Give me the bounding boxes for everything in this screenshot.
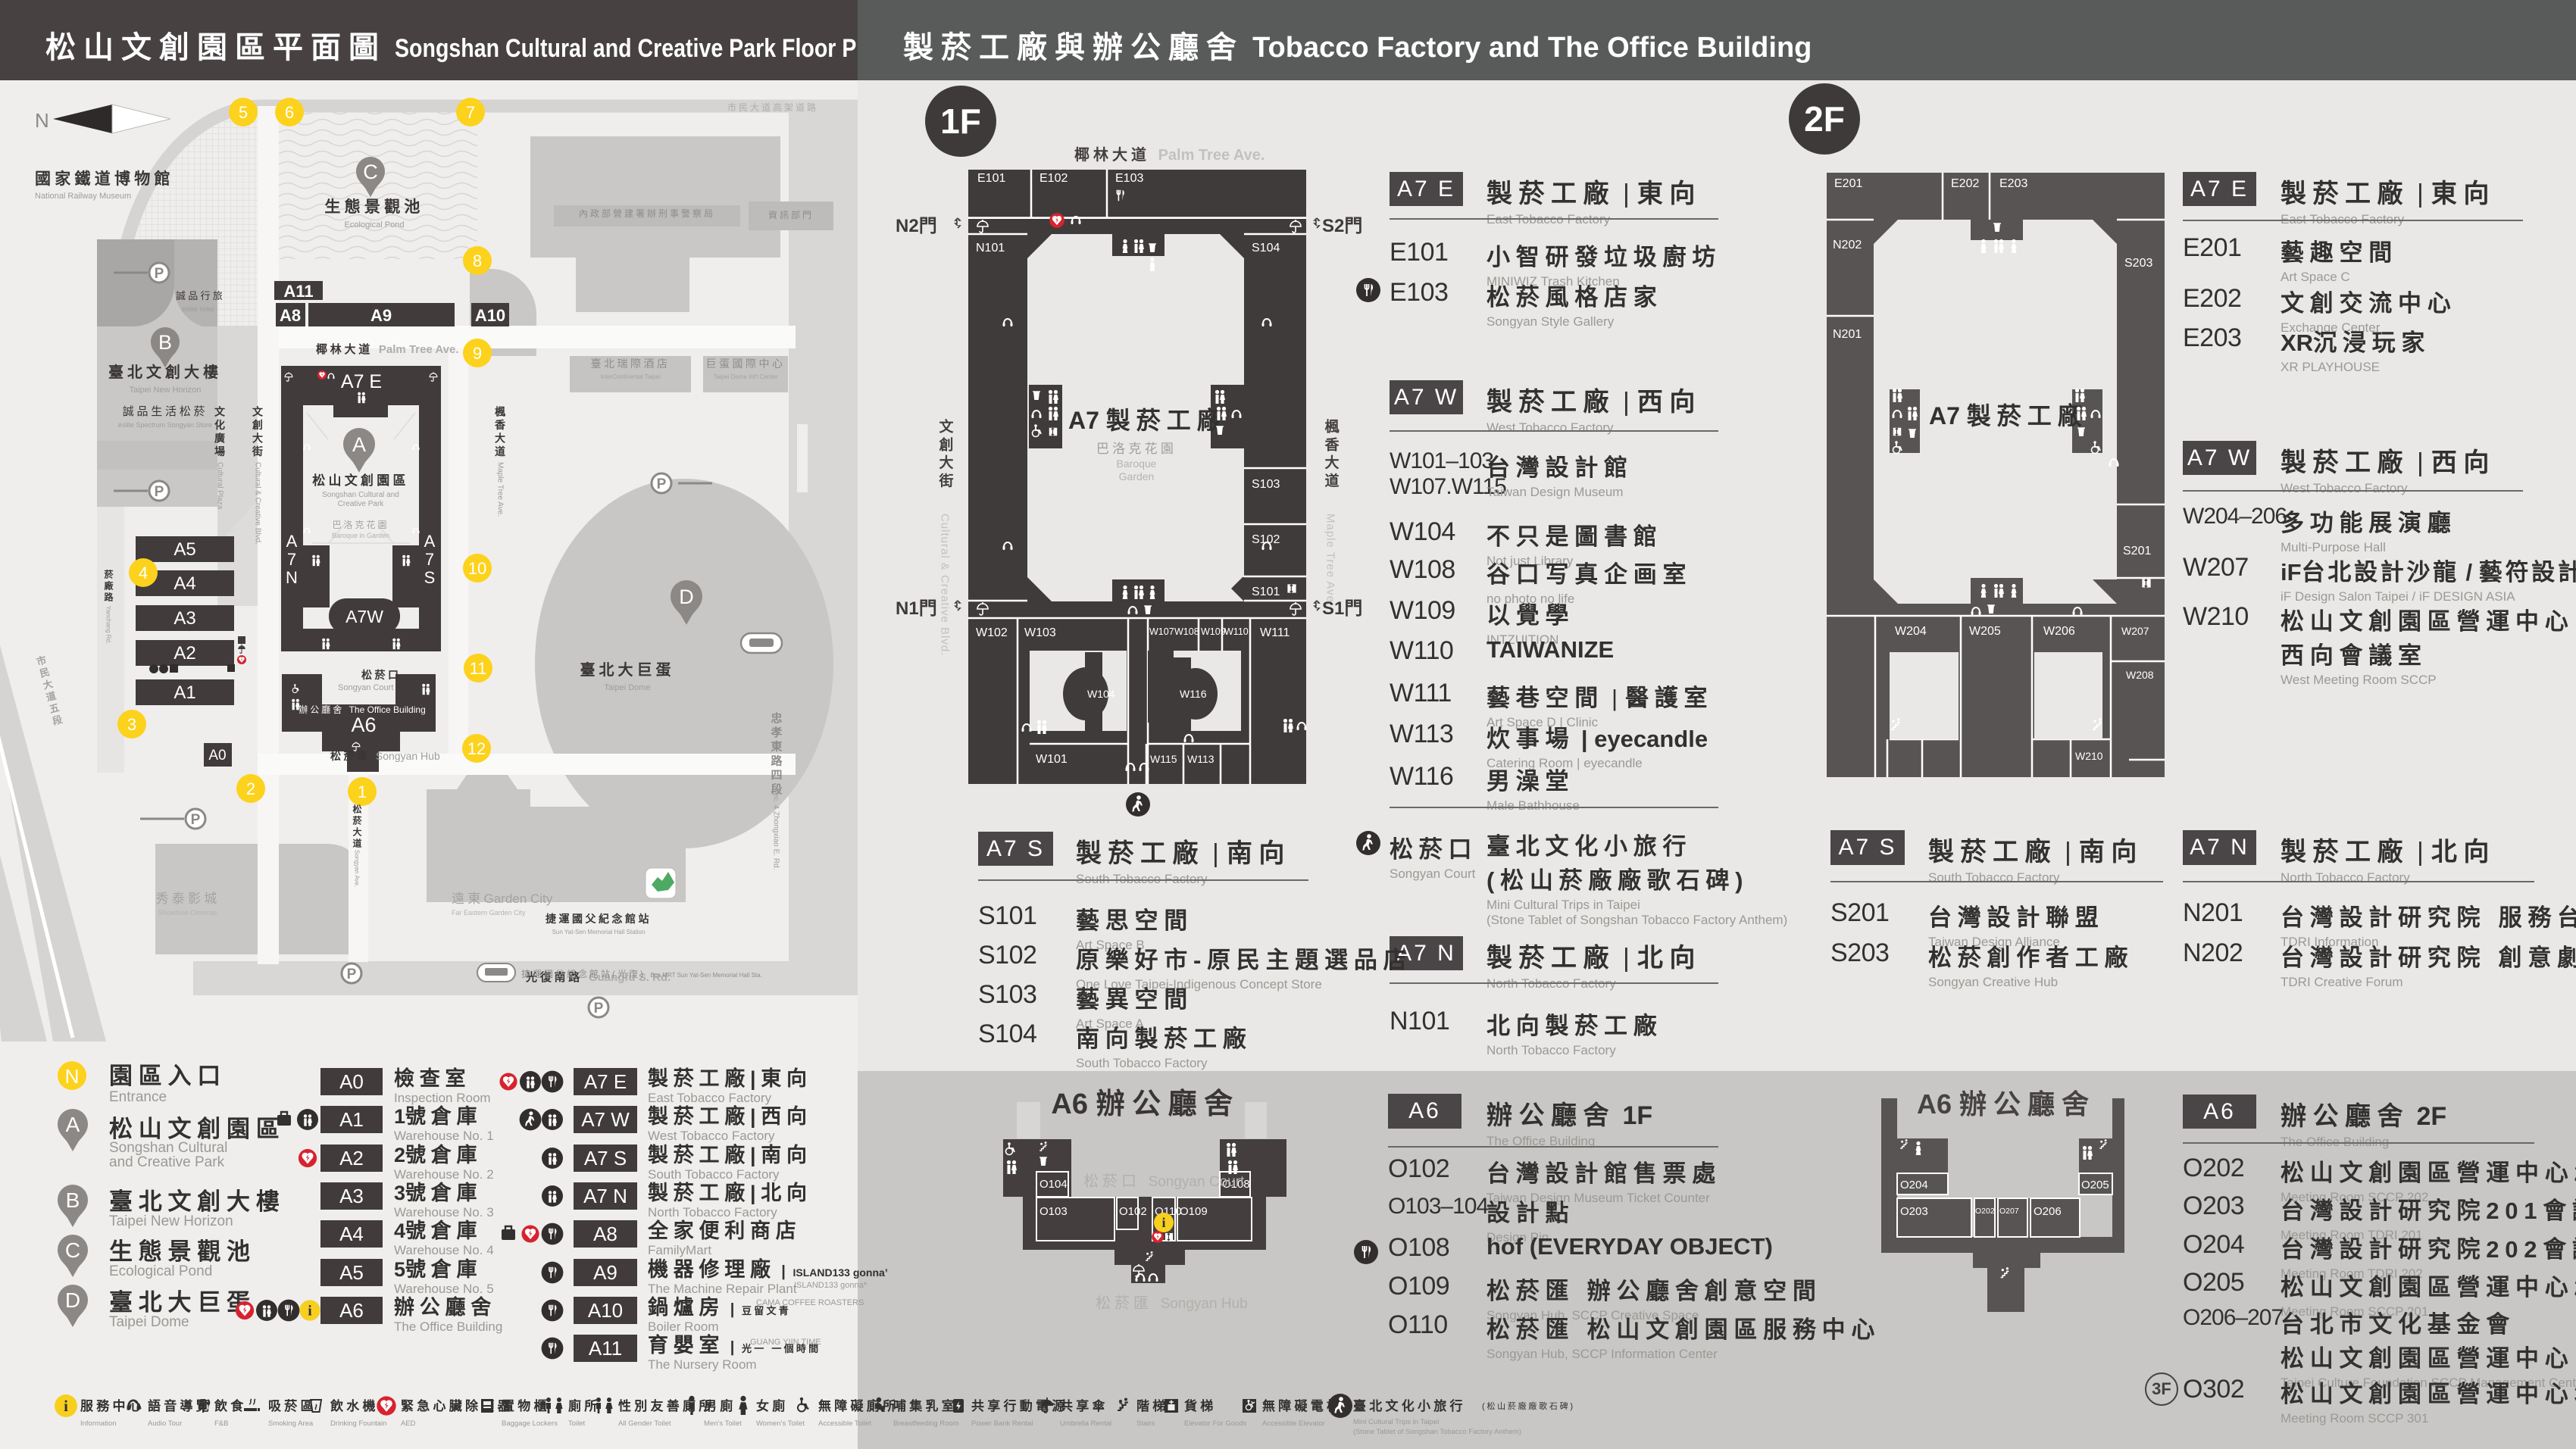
svg-text:AED: AED: [401, 1419, 416, 1428]
svg-text:Elevator For Goods: Elevator For Goods: [1184, 1419, 1247, 1428]
svg-text:製菸工廠|北向: 製菸工廠|北向: [648, 1181, 812, 1204]
svg-text:Toilet: Toilet: [568, 1419, 586, 1428]
svg-text:All Gender Toilet: All Gender Toilet: [618, 1419, 671, 1428]
svg-text:W103: W103: [1024, 626, 1056, 639]
svg-text:Ecological Pond: Ecological Pond: [109, 1263, 212, 1279]
svg-text:Accessible Toilet: Accessible Toilet: [818, 1419, 871, 1428]
svg-text:Inspection Room: Inspection Room: [394, 1091, 491, 1105]
svg-text:The Nursery Room: The Nursery Room: [648, 1357, 757, 1372]
svg-text:W113: W113: [1187, 753, 1215, 765]
svg-text:A6: A6: [339, 1299, 364, 1322]
svg-text:Baroque: Baroque: [1117, 457, 1157, 470]
svg-text:A0: A0: [339, 1070, 364, 1093]
svg-text:飲水機: 飲水機: [330, 1398, 379, 1413]
svg-text:5號倉庫: 5號倉庫: [394, 1257, 482, 1281]
svg-text:2F: 2F: [1804, 99, 1845, 139]
svg-text:共享行動電源: 共享行動電源: [971, 1398, 1068, 1413]
svg-text:生態景觀池: 生態景觀池: [109, 1238, 256, 1265]
svg-text:E102: E102: [1039, 172, 1068, 185]
svg-text:A7 製菸工廠: A7 製菸工廠: [1068, 407, 1227, 434]
svg-text:W116: W116: [1180, 688, 1207, 700]
svg-text:Audio Tour: Audio Tour: [148, 1419, 182, 1428]
svg-text:East Tobacco Factory: East Tobacco Factory: [648, 1091, 772, 1105]
svg-text:S102: S102: [1252, 533, 1280, 546]
svg-text:W111: W111: [1260, 626, 1290, 639]
svg-text:3號倉庫: 3號倉庫: [394, 1181, 482, 1204]
svg-text:男廁: 男廁: [704, 1398, 736, 1413]
svg-text:W115: W115: [1150, 753, 1177, 765]
svg-text:N101: N101: [976, 242, 1005, 255]
svg-text:C: C: [65, 1238, 80, 1262]
svg-text:Warehouse No. 3: Warehouse No. 3: [394, 1205, 494, 1219]
svg-text:W104: W104: [1087, 688, 1115, 700]
svg-text:階梯: 階梯: [1136, 1398, 1169, 1413]
svg-text:Entrance: Entrance: [109, 1089, 167, 1105]
svg-text:臺北大巨蛋: 臺北大巨蛋: [109, 1289, 256, 1316]
svg-text:A4: A4: [339, 1223, 364, 1245]
svg-text:A7 E: A7 E: [584, 1070, 627, 1093]
svg-text:2號倉庫: 2號倉庫: [394, 1143, 482, 1166]
svg-text:臺北文化小旅行: 臺北文化小旅行: [1353, 1398, 1466, 1413]
svg-text:Boiler Room: Boiler Room: [648, 1319, 719, 1334]
svg-text:廁所: 廁所: [568, 1398, 601, 1413]
svg-text:CAMA COFFEE ROASTERS: CAMA COFFEE ROASTERS: [756, 1298, 864, 1307]
svg-text:S201: S201: [2123, 545, 2151, 557]
svg-text:E103: E103: [1115, 172, 1143, 185]
svg-text:North Tobacco Factory: North Tobacco Factory: [648, 1205, 777, 1219]
svg-text:W208: W208: [2126, 669, 2154, 681]
svg-text:Maple Tree Ave.: Maple Tree Ave.: [1324, 514, 1337, 607]
svg-text:A8: A8: [593, 1223, 617, 1245]
svg-text:W102: W102: [976, 626, 1008, 639]
svg-text:製菸工廠|南向: 製菸工廠|南向: [648, 1143, 812, 1166]
svg-text:臺北文創大樓: 臺北文創大樓: [109, 1188, 286, 1215]
svg-text:Warehouse No. 5: Warehouse No. 5: [394, 1282, 494, 1296]
svg-text:A7 W: A7 W: [581, 1108, 630, 1131]
svg-text:製菸工廠|東向: 製菸工廠|東向: [648, 1066, 812, 1090]
svg-text:S2門: S2門: [1322, 216, 1367, 236]
svg-text:A5: A5: [339, 1261, 364, 1284]
svg-text:S101: S101: [1252, 586, 1280, 598]
svg-text:女廁: 女廁: [756, 1398, 789, 1413]
svg-text:吸菸區: 吸菸區: [268, 1399, 317, 1413]
svg-text:Songshan Cultural: Songshan Cultural: [109, 1140, 227, 1156]
svg-text:Breastfeeding Room: Breastfeeding Room: [893, 1419, 959, 1428]
svg-text:飲食: 飲食: [214, 1398, 247, 1413]
svg-text:(松山菸廠廠歌石碑): (松山菸廠廠歌石碑): [1482, 1401, 1575, 1411]
svg-text:W109: W109: [1201, 626, 1226, 637]
svg-text:W110: W110: [1224, 626, 1249, 637]
svg-text:N2門: N2門: [896, 216, 942, 236]
svg-text:W108: W108: [1174, 626, 1199, 637]
svg-text:S103: S103: [1252, 478, 1280, 491]
svg-text:S203: S203: [2124, 257, 2152, 270]
svg-text:W210: W210: [2075, 750, 2103, 762]
svg-text:文創大街: 文創大街: [937, 418, 955, 491]
svg-text:W204: W204: [1895, 625, 1927, 638]
svg-text:A3: A3: [339, 1185, 364, 1207]
svg-text:S104: S104: [1252, 242, 1280, 255]
svg-text:W101: W101: [1036, 753, 1068, 766]
svg-text:W207: W207: [2121, 625, 2149, 637]
svg-text:Baggage Lockers: Baggage Lockers: [502, 1419, 558, 1428]
svg-text:E101: E101: [977, 172, 1005, 185]
svg-text:A9: A9: [593, 1261, 617, 1284]
svg-text:楓香大道: 楓香大道: [1323, 418, 1340, 491]
svg-text:Information: Information: [80, 1419, 117, 1428]
svg-text:A: A: [66, 1113, 80, 1136]
svg-text:W107: W107: [1149, 626, 1174, 637]
svg-text:哺集乳室: 哺集乳室: [893, 1398, 958, 1413]
svg-text:A10: A10: [588, 1299, 623, 1322]
svg-text:F&B: F&B: [214, 1419, 228, 1428]
svg-text:性別友善廁所: 性別友善廁所: [618, 1398, 715, 1413]
svg-text:W205: W205: [1969, 625, 2001, 638]
svg-text:A7 N: A7 N: [583, 1185, 627, 1207]
svg-text:製菸工廠|西向: 製菸工廠|西向: [648, 1104, 812, 1128]
svg-text:貨梯: 貨梯: [1184, 1398, 1217, 1413]
svg-text:A11: A11: [589, 1337, 622, 1360]
svg-text:1F: 1F: [940, 101, 981, 141]
svg-text:Stairs: Stairs: [1136, 1419, 1155, 1428]
svg-text:椰林大道 Palm Tree Ave.: 椰林大道 Palm Tree Ave.: [1074, 145, 1265, 164]
svg-text:A7 S: A7 S: [584, 1147, 627, 1170]
svg-text:Smoking Area: Smoking Area: [268, 1419, 314, 1428]
svg-text:B: B: [66, 1188, 80, 1212]
svg-text:ISLAND133 gonna*: ISLAND133 gonna*: [794, 1281, 868, 1290]
svg-text:檢查室: 檢查室: [394, 1066, 470, 1090]
svg-text:D: D: [65, 1288, 80, 1312]
svg-text:無障礙廁所: 無障礙廁所: [818, 1398, 899, 1413]
svg-text:South Tobacco Factory: South Tobacco Factory: [648, 1167, 780, 1182]
svg-text:Women’s Toilet: Women’s Toilet: [756, 1419, 805, 1428]
svg-text:Men’s Toilet: Men’s Toilet: [704, 1419, 742, 1428]
svg-text:Accessible Elevator: Accessible Elevator: [1262, 1419, 1325, 1428]
svg-text:Cultural & Creative Blvd.: Cultural & Creative Blvd.: [939, 514, 952, 656]
svg-text:Warehouse No. 2: Warehouse No. 2: [394, 1167, 494, 1182]
svg-text:N1門: N1門: [896, 598, 942, 619]
svg-text:Taipei Dome: Taipei Dome: [109, 1314, 189, 1330]
svg-text:Drinking Fountain: Drinking Fountain: [330, 1419, 386, 1428]
svg-text:1號倉庫: 1號倉庫: [394, 1104, 482, 1128]
svg-text:A2: A2: [339, 1147, 364, 1170]
svg-text:E202: E202: [1951, 177, 1979, 190]
svg-text:N202: N202: [1833, 239, 1862, 251]
svg-text:W206: W206: [2043, 625, 2075, 638]
svg-text:and Creative Park: and Creative Park: [109, 1154, 225, 1170]
svg-text:全家便利商店: 全家便利商店: [647, 1219, 802, 1242]
svg-text:E203: E203: [1999, 177, 2027, 190]
svg-text:Taipei New Horizon: Taipei New Horizon: [109, 1213, 233, 1229]
svg-text:(Stone Tablet of Songshan Toba: (Stone Tablet of Songshan Tobacco Factor…: [1353, 1428, 1521, 1436]
svg-text:置物櫃: 置物櫃: [502, 1398, 550, 1413]
svg-text:N201: N201: [1833, 328, 1862, 341]
svg-text:緊急心臟除顫器: 緊急心臟除顫器: [401, 1398, 514, 1413]
svg-text:Power Bank Rental: Power Bank Rental: [971, 1419, 1033, 1428]
svg-text:The Machine Repair Plant: The Machine Repair Plant: [648, 1282, 797, 1296]
svg-text:FamilyMart: FamilyMart: [648, 1243, 711, 1257]
svg-text:辦公廳舍: 辦公廳舍: [394, 1295, 496, 1319]
svg-text:The Office Building: The Office Building: [394, 1319, 502, 1334]
svg-text:E201: E201: [1834, 177, 1862, 190]
svg-text:4號倉庫: 4號倉庫: [394, 1219, 482, 1242]
svg-text:園區入口: 園區入口: [109, 1063, 227, 1089]
svg-text:Mini Cultural Trips in Taipei: Mini Cultural Trips in Taipei: [1353, 1418, 1439, 1426]
svg-text:GUANG YIIN TIME: GUANG YIIN TIME: [750, 1338, 821, 1347]
svg-text:A1: A1: [339, 1108, 364, 1131]
svg-text:Garden: Garden: [1119, 470, 1155, 482]
svg-text:Warehouse No. 1: Warehouse No. 1: [394, 1129, 494, 1143]
svg-text:A7 製菸工廠: A7 製菸工廠: [1929, 402, 2088, 429]
svg-text:機器修理廠 | ISLAND133 gonna’: 機器修理廠 | ISLAND133 gonna’: [648, 1257, 888, 1281]
svg-text:Umbrella Rental: Umbrella Rental: [1060, 1419, 1111, 1428]
svg-text:Warehouse No. 4: Warehouse No. 4: [394, 1243, 494, 1257]
svg-text:共享傘: 共享傘: [1060, 1398, 1108, 1413]
svg-text:West Tobacco Factory: West Tobacco Factory: [648, 1129, 775, 1143]
svg-text:N: N: [65, 1065, 80, 1088]
svg-text:松山文創園區: 松山文創園區: [109, 1116, 286, 1142]
svg-text:巴洛克花園: 巴洛克花園: [1096, 442, 1177, 456]
